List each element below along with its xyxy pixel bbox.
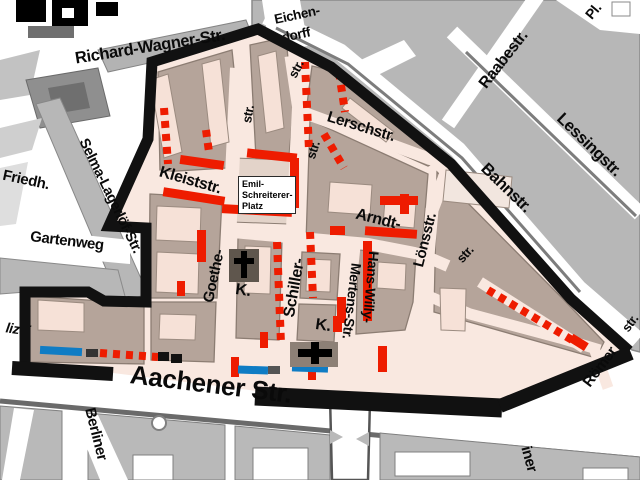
- label-goethestr-fragment: str.: [240, 104, 256, 124]
- label-kirche-goethestr: K.: [234, 282, 251, 300]
- place-box-line2: Schreiterer-: [242, 190, 294, 201]
- place-box-emil-schreiterer-platz: Emil- Schreiterer- Platz: [238, 176, 296, 214]
- label-kirche-aachener: K.: [314, 317, 331, 335]
- place-box-line1: Emil-: [242, 179, 294, 190]
- place-box-line3: Platz: [242, 201, 294, 212]
- map-canvas[interactable]: Emil- Schreiterer- Platz Richard-Wagner-…: [0, 0, 640, 480]
